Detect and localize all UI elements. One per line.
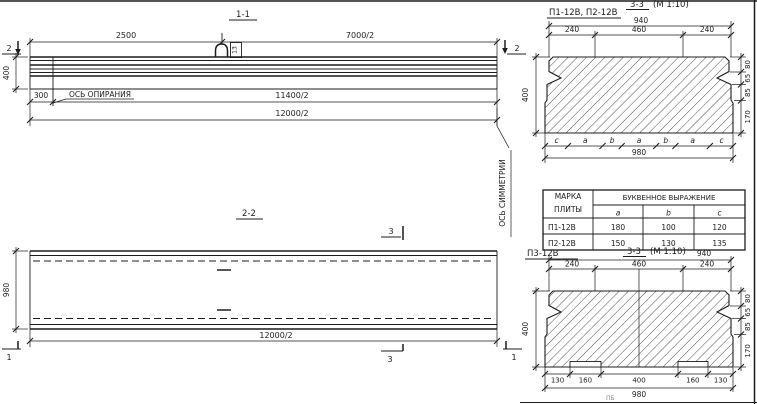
table-row: П1-12В 180 100 120 <box>548 223 727 232</box>
dim-7000-2: 7000/2 <box>346 31 374 40</box>
table-row2-a: 150 <box>611 239 626 248</box>
section-1-1-height-dim: 400 <box>2 53 28 93</box>
footer-note: ПБ <box>606 395 615 402</box>
table-header-marka: МАРКА <box>555 192 582 201</box>
table-row1-a: 180 <box>611 223 626 232</box>
hook-mark-label: 13 <box>232 46 239 54</box>
cut-marker-3-top-label: 3 <box>388 227 393 236</box>
dim-right-65-bottom: 65 <box>744 308 752 317</box>
cross-section-body-top <box>545 57 733 133</box>
cut-marker-2-left-label: 2 <box>6 44 11 53</box>
letter-c-2: c <box>719 136 724 145</box>
letter-a-2: a <box>637 136 642 145</box>
dim-980-s22: 980 <box>2 283 11 298</box>
dim-right-170-top: 170 <box>744 110 752 123</box>
section-1-1: 1-1 2 2 2500 7000/2 <box>2 10 526 237</box>
section-top-label: П1-12В, П2-12В <box>549 8 618 18</box>
plate-table: МАРКА ПЛИТЫ БУКВЕННОЕ ВЫРАЖЕНИЕ a b c П1… <box>543 190 745 250</box>
top-section-940-dim: 940 <box>546 16 734 57</box>
cut-marker-3-bottom: 3 <box>381 344 403 364</box>
cut-marker-1-left-label: 1 <box>6 353 11 362</box>
bottom-section-240-460-dim: 240 460 240 <box>546 260 734 292</box>
cut-marker-1-left: 1 <box>2 341 21 362</box>
cut-marker-2-right: 2 <box>502 40 526 54</box>
top-section-240-460-dim: 240 460 240 <box>546 25 734 57</box>
dim-11400-2: 11400/2 <box>275 91 308 100</box>
section-1-1-mid-dims: 300 ОСЬ ОПИРАНИЯ 11400/2 <box>27 89 500 126</box>
table-row1-c: 120 <box>712 223 727 232</box>
section-3-3-top: П1-12В, П2-12В 3-3 (М 1:10) 940 240 460 … <box>521 0 752 163</box>
table-header-plity: ПЛИТЫ <box>554 205 582 214</box>
dim-240-right-bottom: 240 <box>700 260 715 269</box>
dim-400-bottom-section: 400 <box>521 322 530 337</box>
dim-940-top: 940 <box>634 16 649 25</box>
support-axis-label: ОСЬ ОПИРАНИЯ <box>69 90 131 99</box>
table-col-a: a <box>616 209 621 218</box>
letter-b-1: b <box>610 136 615 145</box>
dim-160-right: 160 <box>686 377 699 385</box>
section-2-2-bottom-dims: 12000/2 <box>27 329 500 347</box>
table-col-b: b <box>666 209 671 218</box>
dim-240-right-top: 240 <box>700 25 715 34</box>
table-row2-mark: П2-12В <box>548 239 576 248</box>
section-top-title: 3-3 <box>630 0 644 10</box>
dim-12000-2-s11: 12000/2 <box>275 109 308 118</box>
dim-980-top: 980 <box>632 148 647 157</box>
section-1-1-bottom-dims: 12000/2 <box>27 109 500 123</box>
table-row2-c: 135 <box>712 239 727 248</box>
dim-130-right: 130 <box>714 377 727 385</box>
dim-right-80-bottom: 80 <box>744 294 752 303</box>
symmetry-axis-label: ОСЬ СИММЕТРИИ <box>498 159 507 227</box>
section-top-scale: (М 1:10) <box>653 0 689 10</box>
dim-400-mid: 400 <box>632 377 645 385</box>
dim-right-170-bottom: 170 <box>744 344 752 357</box>
table-row1-b: 100 <box>661 223 676 232</box>
dim-2500: 2500 <box>116 31 136 40</box>
cut-marker-3-bottom-label: 3 <box>387 355 392 364</box>
dim-right-65-top: 65 <box>744 74 752 83</box>
letter-a-3: a <box>690 136 695 145</box>
section-3-3-bottom: П3-12В 3-3 (М 1:10) 940 240 460 240 <box>521 247 752 399</box>
dim-300: 300 <box>34 91 49 100</box>
section-bottom-scale: (М 1:10) <box>650 247 686 257</box>
cut-marker-2-right-label: 2 <box>514 44 519 53</box>
section-1-1-title: 1-1 <box>236 10 250 20</box>
dim-980-bottom: 980 <box>632 390 647 399</box>
section-2-2: 2-2 3 980 <box>2 209 522 364</box>
dim-160-left: 160 <box>579 377 592 385</box>
letter-b-2: b <box>663 136 668 145</box>
symmetry-axis-leader: ОСЬ СИММЕТРИИ <box>497 108 511 237</box>
bottom-section-980-dim: 980 <box>542 385 736 399</box>
dim-400-s11: 400 <box>2 66 11 81</box>
dim-right-80-top: 80 <box>744 60 752 69</box>
section-2-2-title: 2-2 <box>242 209 256 219</box>
dim-right-85-top: 85 <box>744 88 752 97</box>
cut-marker-1-right: 1 <box>503 341 522 362</box>
letter-c-1: c <box>554 136 559 145</box>
drawing-sheet: 1-1 2 2 2500 7000/2 <box>0 0 757 404</box>
cut-marker-3-top: 3 <box>381 226 403 240</box>
dim-12000-2-s22: 12000/2 <box>259 331 292 340</box>
section-bottom-label: П3-12В <box>527 249 559 259</box>
cut-marker-1-right-label: 1 <box>511 353 516 362</box>
table-header-expr: БУКВЕННОЕ ВЫРАЖЕНИЕ <box>623 194 716 202</box>
section-2-2-height-dim: 980 <box>2 247 28 333</box>
dim-460-bottom: 460 <box>632 260 647 269</box>
letter-a-1: a <box>583 136 588 145</box>
section-1-1-top-dims: 2500 7000/2 <box>27 31 500 57</box>
plate-plan-body <box>30 251 497 329</box>
dim-940-bottom: 940 <box>697 249 712 258</box>
dim-130-left: 130 <box>551 377 564 385</box>
table-row1-mark: П1-12В <box>548 223 576 232</box>
dim-460-top: 460 <box>632 25 647 34</box>
dim-240-left-bottom: 240 <box>565 260 580 269</box>
top-section-980-dim: 980 <box>542 148 736 161</box>
cut-marker-2-left: 2 <box>2 41 21 55</box>
dim-right-85-bottom: 85 <box>744 322 752 331</box>
blueprint-svg: 1-1 2 2 2500 7000/2 <box>0 0 757 404</box>
dim-400-top-section: 400 <box>521 88 530 103</box>
table-col-c: c <box>717 209 722 218</box>
section-bottom-title: 3-3 <box>627 247 641 257</box>
dim-240-left-top: 240 <box>565 25 580 34</box>
